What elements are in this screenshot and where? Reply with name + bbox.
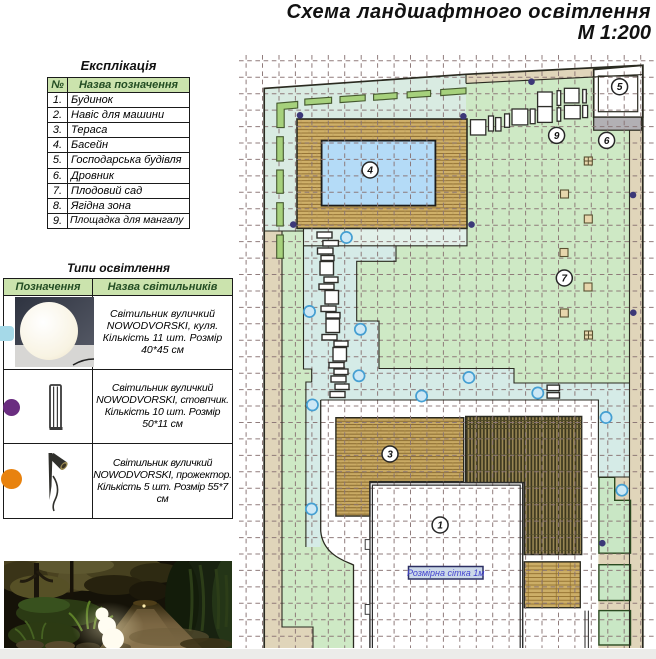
svg-text:Розмірна сітка 1м: Розмірна сітка 1м [407,568,484,578]
svg-text:4: 4 [366,166,373,177]
svg-text:1: 1 [437,521,443,532]
svg-text:7: 7 [562,274,568,285]
svg-text:6: 6 [604,136,610,147]
svg-text:3: 3 [387,450,393,461]
svg-text:5: 5 [617,82,623,93]
svg-text:9: 9 [554,131,560,142]
